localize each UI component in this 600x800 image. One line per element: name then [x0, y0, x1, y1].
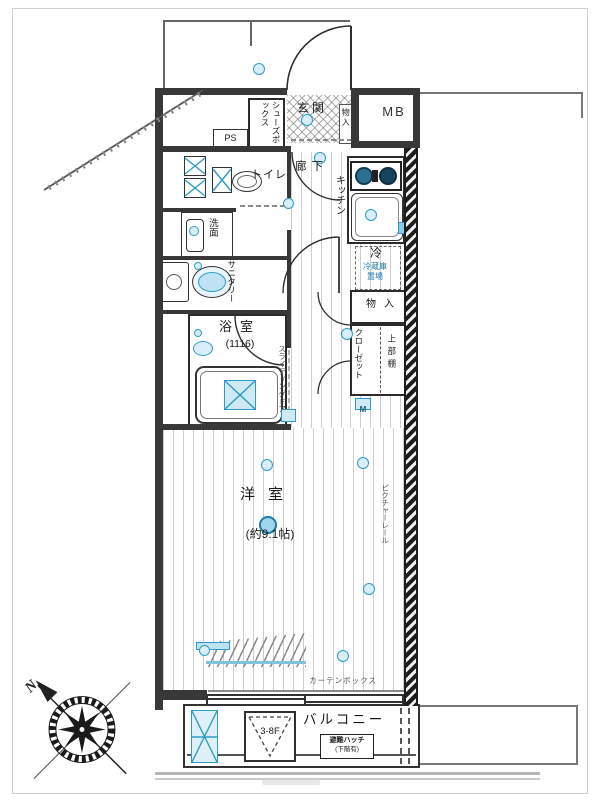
floor-plan: M MB 玄関 シューズボックス PS 物入 トイレ 廊下 キッチン 洗面 サニ…: [0, 0, 600, 800]
kitchen-label: キッチン: [333, 175, 345, 225]
wall-stub-bottom-left: [155, 690, 207, 700]
fridge-space-label: 冷蔵庫置場: [361, 262, 389, 282]
wall-top-right: [351, 88, 420, 95]
wall-bath-bottom: [163, 424, 291, 430]
window-sash-right: [305, 701, 404, 703]
window-center: [304, 696, 306, 704]
water-heater-upper: [184, 156, 206, 176]
stove-center: [372, 170, 378, 182]
symbol-circle-room-5: [199, 645, 210, 656]
washroom-label: 洗面: [206, 218, 217, 256]
burner-right-icon: [379, 167, 397, 185]
shoes-box-label: シューズボックス: [253, 101, 281, 146]
wall-mb-right: [413, 88, 420, 148]
balcony-partition-dash-1: [400, 708, 402, 764]
main-room-label: 洋室: [240, 486, 296, 503]
floor-range-label: 3-8F: [244, 727, 296, 738]
line-neighbor-stub: [250, 22, 252, 46]
bathroom-size-label: (1116): [211, 338, 269, 350]
sanitary-label: サニタリー: [226, 260, 236, 308]
wall-top-left: [155, 88, 287, 95]
basin-bowl-inner: [198, 272, 226, 292]
symbol-circle-genkan: [301, 114, 313, 126]
beam-edge: [206, 661, 306, 664]
vanity-faucet-icon: [189, 226, 199, 236]
outlet-m-label: M: [360, 405, 367, 414]
ps-label: PS: [213, 133, 248, 143]
mb-label: MB: [374, 105, 414, 120]
picture-rail-label: ピクチャーレール: [380, 484, 389, 564]
compass-rose: N: [22, 668, 140, 792]
outlet-m-badge: M: [355, 398, 371, 410]
wall-left: [155, 88, 163, 710]
hatch-label-line2: (下階有): [320, 746, 374, 753]
balcony-label: バルコニー: [303, 712, 385, 728]
wall-partition-1: [163, 208, 236, 212]
wall-partition-2: [163, 256, 287, 260]
symbol-circle-corridor: [283, 198, 294, 209]
window-sash-left: [206, 698, 306, 700]
line-ground-2: [155, 778, 540, 780]
line-neighbor-balcony-bottom: [420, 763, 578, 765]
bath-faucet-icon: [194, 329, 202, 337]
compass-needle-head: [36, 680, 58, 702]
wall-partition-3: [163, 310, 287, 314]
bath-drain-box: [224, 380, 256, 410]
symbol-circle-closet-front: [341, 328, 353, 340]
line-neighbor-h: [163, 20, 350, 22]
line-neighbor-v: [163, 20, 165, 88]
symbol-circle-room-4: [337, 650, 349, 662]
wall-right-hatched: [404, 148, 418, 706]
entrance-storage-label: 物入: [341, 108, 350, 142]
line-mb-area-v: [581, 92, 583, 118]
wall-under-sb: [163, 146, 291, 152]
wall-corridor-1: [287, 152, 291, 198]
hallway-label: 廊下: [295, 161, 328, 174]
symbol-circle-room-3: [363, 583, 375, 595]
north-label: N: [22, 676, 42, 697]
curtain-box-line: [208, 690, 404, 692]
escape-ladder-box: [191, 710, 218, 763]
kitchen-sink-inner: [355, 197, 399, 237]
burner-left-icon: [355, 167, 373, 185]
symbol-circle-doorbell: [253, 63, 265, 75]
closet-shelf-line: [380, 327, 381, 393]
curtain-box-label: カーテンボックス: [288, 677, 398, 686]
symbol-circle-room-1: [261, 459, 273, 471]
main-room-size-label: (約9.1帖): [228, 528, 312, 542]
basin-faucet-icon: [194, 262, 202, 270]
line-neighbor-balcony-top: [420, 705, 578, 707]
toilet-label: トイレ: [251, 169, 287, 182]
line-neighbor-balcony-v: [576, 705, 578, 765]
genkan-label: 玄関: [297, 102, 327, 116]
wall-corridor-2: [287, 230, 291, 348]
storage-label: 物入: [350, 299, 410, 311]
balcony-partition-dash-2: [408, 708, 410, 764]
closet-label: クローゼット: [353, 328, 363, 394]
shower-icon: [193, 341, 213, 356]
line-ground-1: [155, 772, 540, 775]
water-heater-lower: [184, 178, 206, 198]
sink-faucet-icon: [365, 209, 377, 221]
sliding-door-label: スライディングドア: [277, 345, 286, 421]
bathroom-label: 浴室: [219, 320, 261, 335]
upper-shelf-label: 上部棚: [386, 334, 396, 390]
toilet-tank: [212, 167, 232, 193]
line-mb-area-h: [420, 92, 583, 94]
fine-print-smudge: [262, 779, 320, 785]
balcony-inner-line: [187, 754, 416, 756]
fridge-label: 冷: [370, 247, 382, 261]
wall-mb-bottom: [357, 141, 415, 148]
compass-center-dot: [80, 727, 85, 732]
hatch-label-line1: 避難ハッチ: [320, 737, 374, 745]
washer-drum-icon: [166, 274, 182, 290]
symbol-circle-room-2: [357, 457, 369, 469]
